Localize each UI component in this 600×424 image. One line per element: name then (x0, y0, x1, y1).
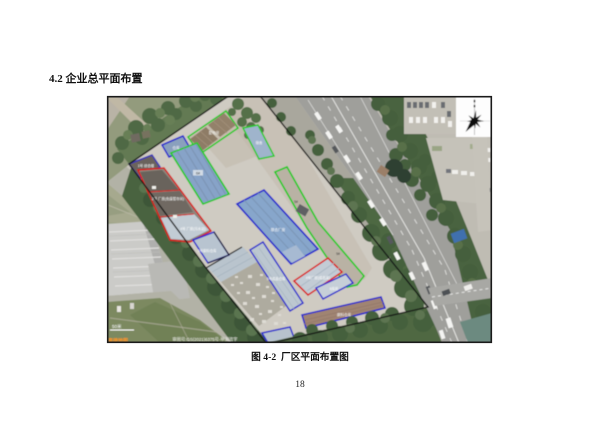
svg-text:联合厂房: 联合厂房 (271, 227, 286, 232)
svg-text:原料仓库: 原料仓库 (337, 312, 352, 317)
svg-text:50米: 50米 (112, 323, 122, 330)
svg-text:8库房: 8库房 (330, 286, 339, 291)
svg-text:6#: 6# (196, 172, 200, 176)
svg-text:3号原料仓库: 3号原料仓库 (198, 248, 217, 253)
svg-text:2号 厂房(危废暂存间): 2号 厂房(危废暂存间) (152, 196, 184, 201)
svg-text:4号 厂房(污水站): 4号 厂房(污水站) (180, 226, 205, 231)
svg-text:宿舍: 宿舍 (256, 140, 263, 145)
svg-text:5#: 5# (294, 200, 298, 204)
svg-text:1号 综合楼: 1号 综合楼 (138, 163, 155, 168)
svg-text:9#: 9# (336, 252, 340, 256)
svg-text:4号厂房(成品库): 4号厂房(成品库) (306, 275, 331, 280)
svg-text:5号成品仓库: 5号成品仓库 (267, 276, 286, 281)
svg-text:配电房: 配电房 (209, 130, 220, 135)
